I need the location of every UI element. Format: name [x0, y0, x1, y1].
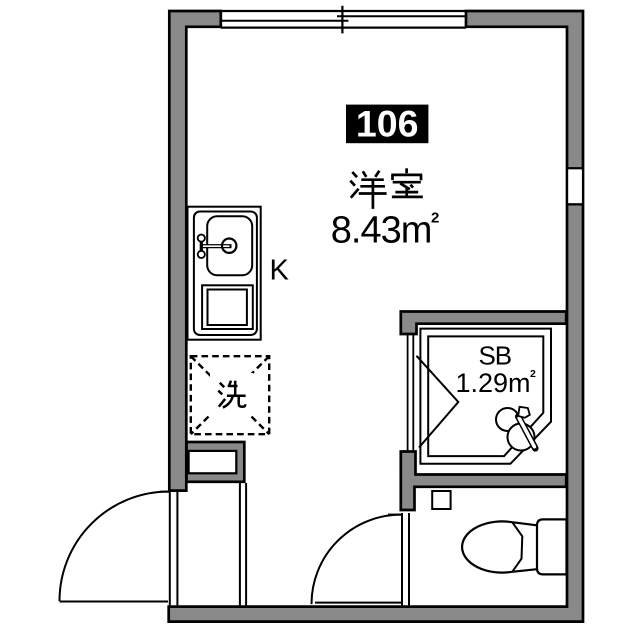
svg-text:2: 2 [530, 368, 536, 380]
svg-text:106: 106 [356, 102, 419, 144]
svg-text:2: 2 [431, 209, 439, 226]
svg-text:8.43m: 8.43m [331, 210, 432, 252]
svg-text:K: K [270, 255, 290, 287]
svg-text:SB: SB [478, 341, 511, 371]
svg-text:1.29m: 1.29m [456, 368, 531, 398]
